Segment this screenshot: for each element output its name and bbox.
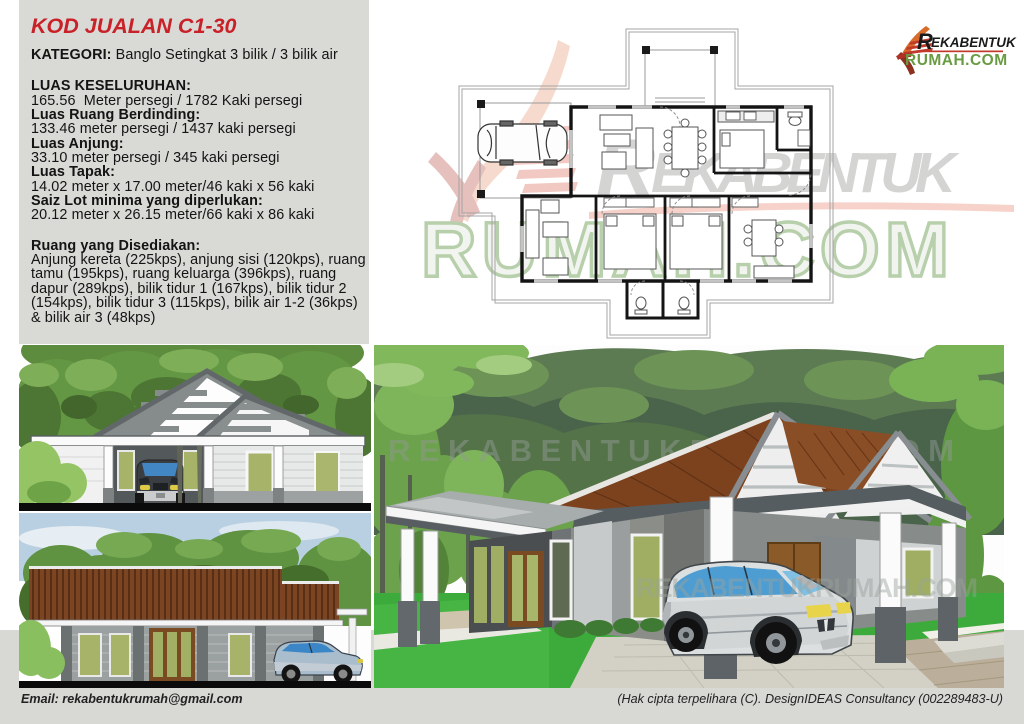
- svg-text:RUMAH.COM: RUMAH.COM: [905, 52, 1008, 69]
- svg-text:REKABENTUKRUMAH.COM: REKABENTUKRUMAH.COM: [636, 573, 978, 603]
- svg-text:EKABENTUK: EKABENTUK: [931, 35, 1017, 50]
